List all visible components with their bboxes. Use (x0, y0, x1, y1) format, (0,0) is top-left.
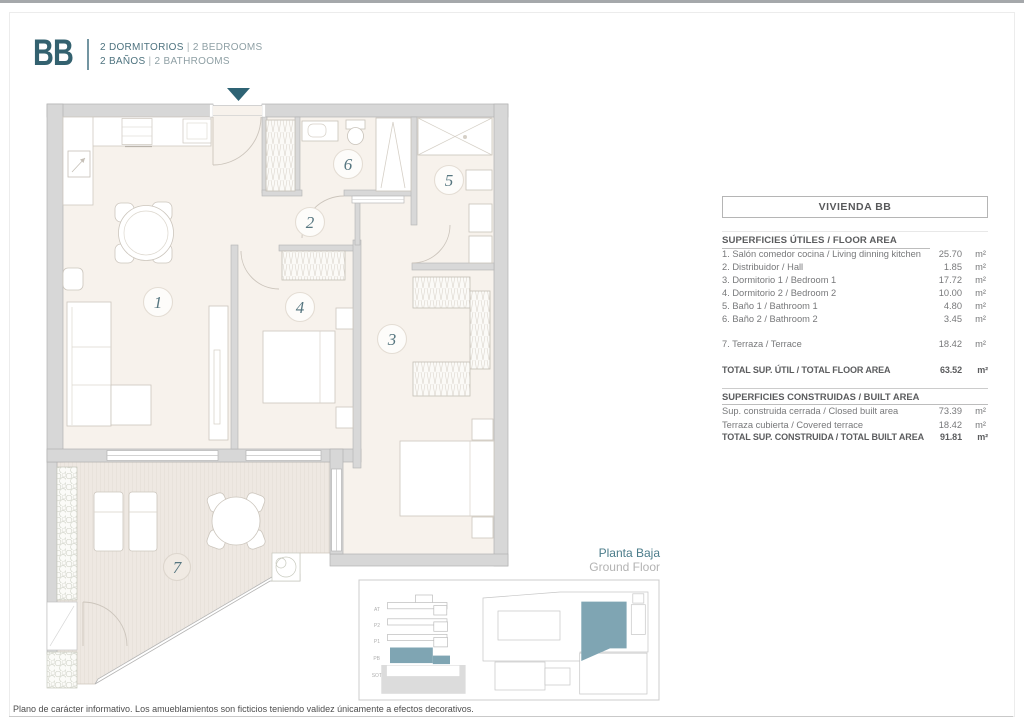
svg-text:3: 3 (387, 330, 397, 349)
svg-text:1: 1 (154, 293, 163, 312)
svg-text:PB: PB (373, 656, 380, 662)
svg-text:P1: P1 (374, 639, 380, 645)
svg-text:4: 4 (296, 298, 305, 317)
svg-text:P2: P2 (374, 623, 380, 629)
svg-text:6: 6 (344, 155, 353, 174)
svg-text:2: 2 (306, 213, 315, 232)
svg-text:SOT: SOT (372, 673, 382, 679)
svg-text:AT: AT (374, 607, 380, 613)
svg-text:5: 5 (445, 171, 454, 190)
